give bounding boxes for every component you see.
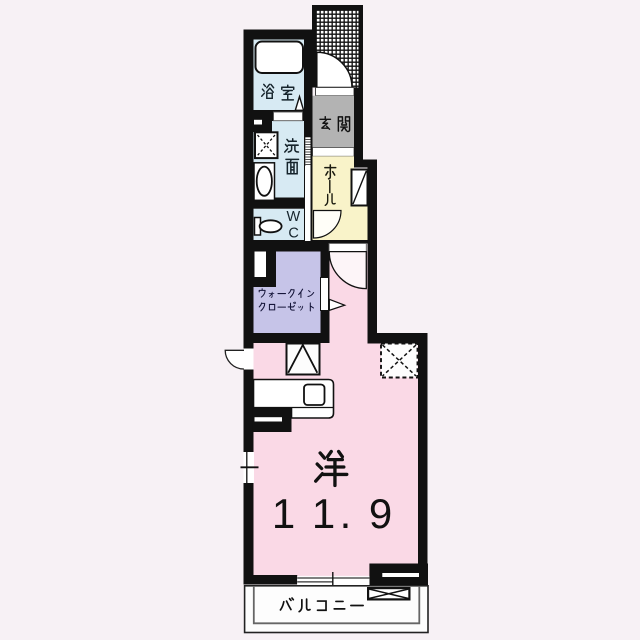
svg-text:1: 1 bbox=[312, 490, 335, 537]
svg-text:.: . bbox=[340, 490, 352, 537]
svg-text:9: 9 bbox=[369, 490, 392, 537]
svg-text:W: W bbox=[287, 209, 301, 225]
svg-text:C: C bbox=[288, 226, 298, 242]
svg-text:1: 1 bbox=[272, 490, 295, 537]
